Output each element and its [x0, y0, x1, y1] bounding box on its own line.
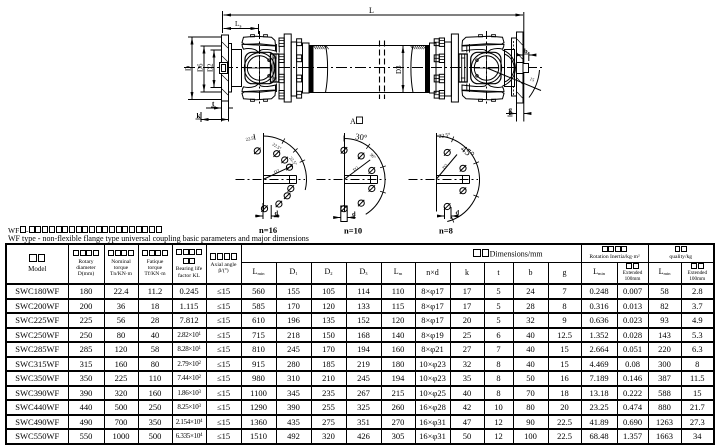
svg-text:15: 15: [529, 76, 536, 82]
svg-text:D2: D2: [352, 165, 359, 172]
svg-text:D6: D6: [197, 63, 205, 72]
svg-text:22.5°: 22.5°: [271, 142, 282, 151]
svg-text:L: L: [369, 6, 374, 15]
svg-text:n=10: n=10: [344, 226, 362, 236]
svg-text:d: d: [352, 211, 356, 218]
svg-text:D2: D2: [273, 168, 280, 175]
svg-text:22.5°: 22.5°: [288, 156, 298, 167]
svg-text:D2: D2: [207, 63, 215, 72]
svg-text:g: g: [509, 106, 513, 114]
svg-text:n=8: n=8: [439, 226, 453, 236]
svg-text:s: s: [240, 25, 242, 30]
svg-text:D: D: [185, 66, 193, 71]
svg-text:22.5°: 22.5°: [245, 135, 256, 142]
svg-text:30°: 30°: [355, 131, 368, 143]
svg-text:A: A: [350, 117, 356, 126]
svg-text:D3: D3: [395, 65, 403, 74]
svg-text:D2: D2: [441, 163, 448, 170]
svg-text:45°: 45°: [458, 144, 476, 161]
svg-text:22.5°: 22.5°: [438, 131, 451, 140]
svg-text:d: d: [456, 210, 460, 217]
svg-text:d: d: [275, 210, 279, 217]
